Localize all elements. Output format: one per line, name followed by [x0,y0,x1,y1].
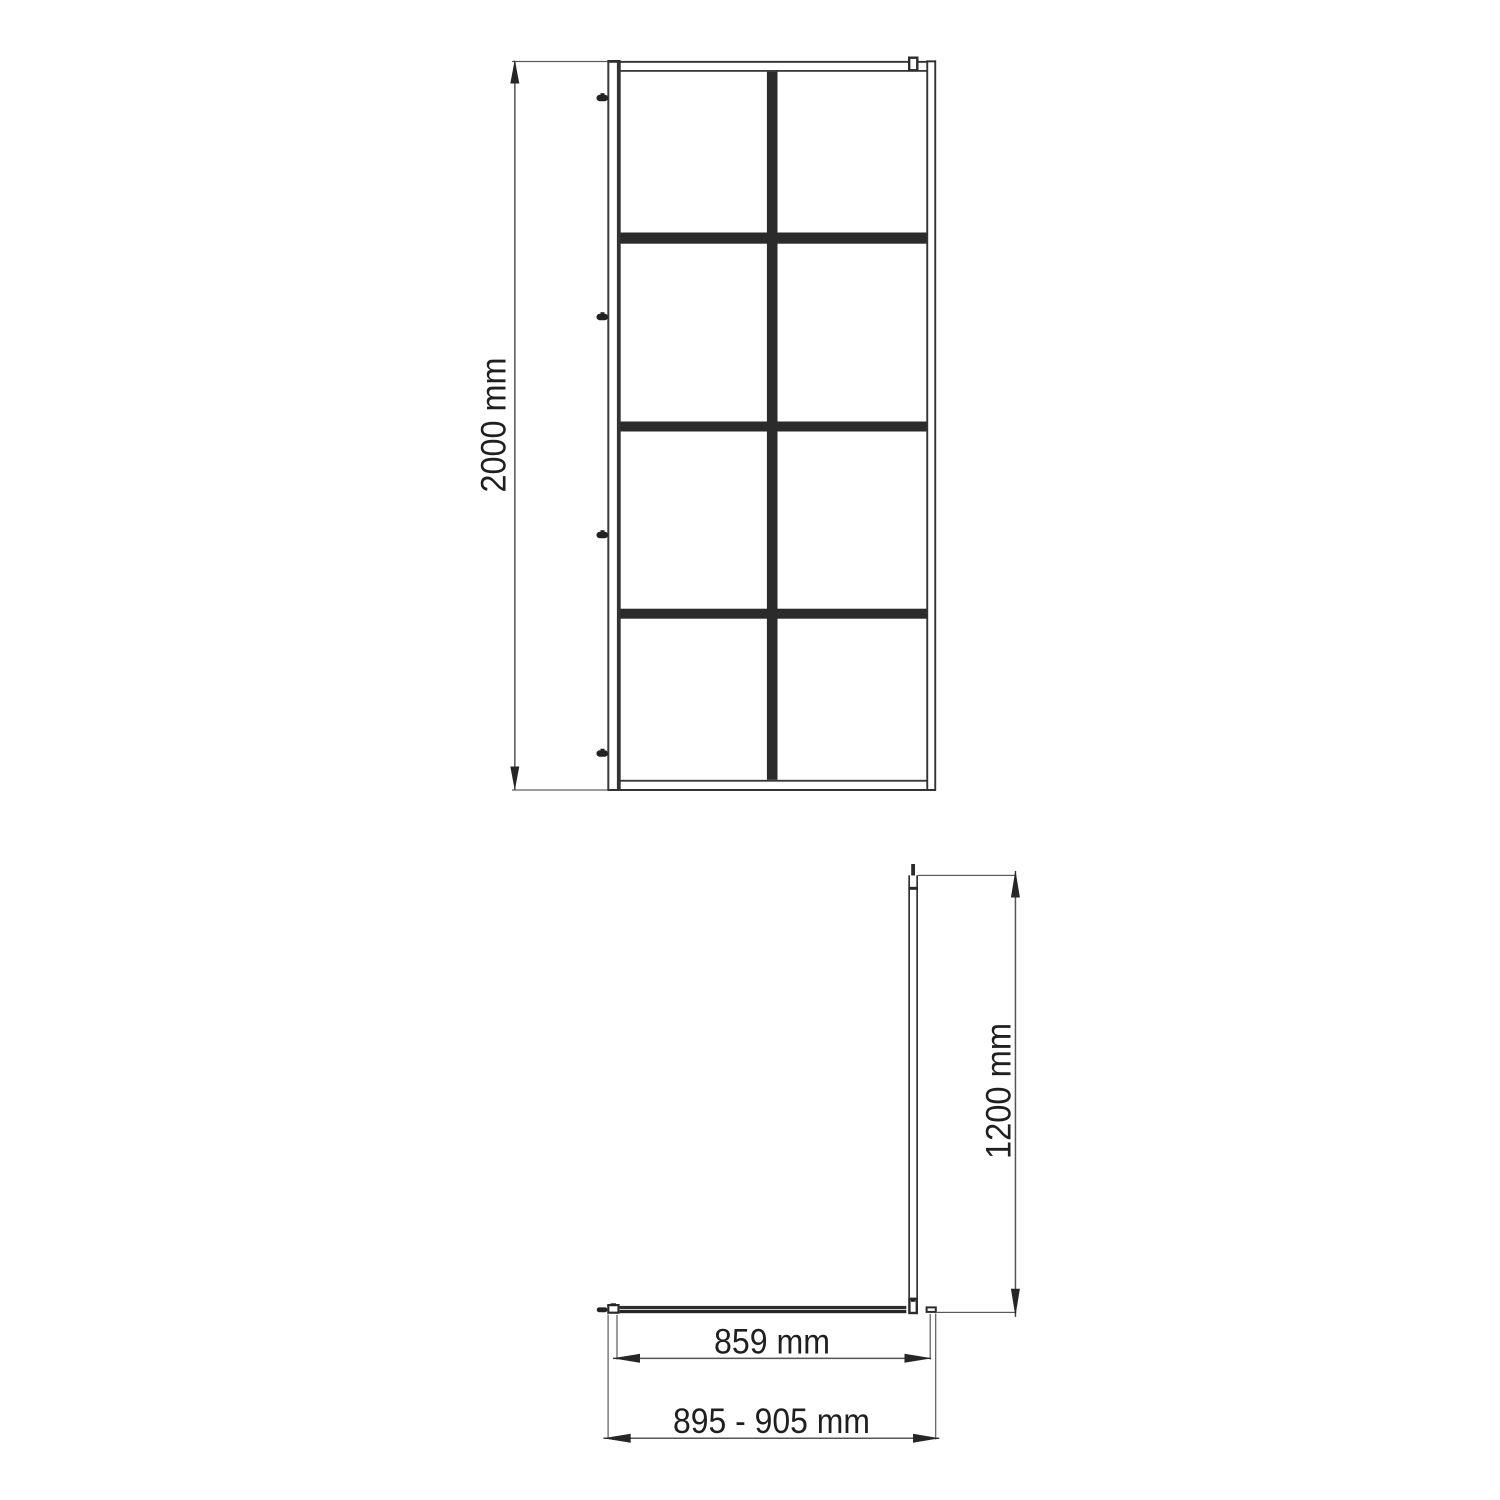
svg-text:1200 mm: 1200 mm [980,1023,1019,1159]
svg-text:895 - 905 mm: 895 - 905 mm [673,1402,870,1441]
svg-text:859 mm: 859 mm [714,1323,830,1362]
svg-text:2000 mm: 2000 mm [475,358,514,493]
